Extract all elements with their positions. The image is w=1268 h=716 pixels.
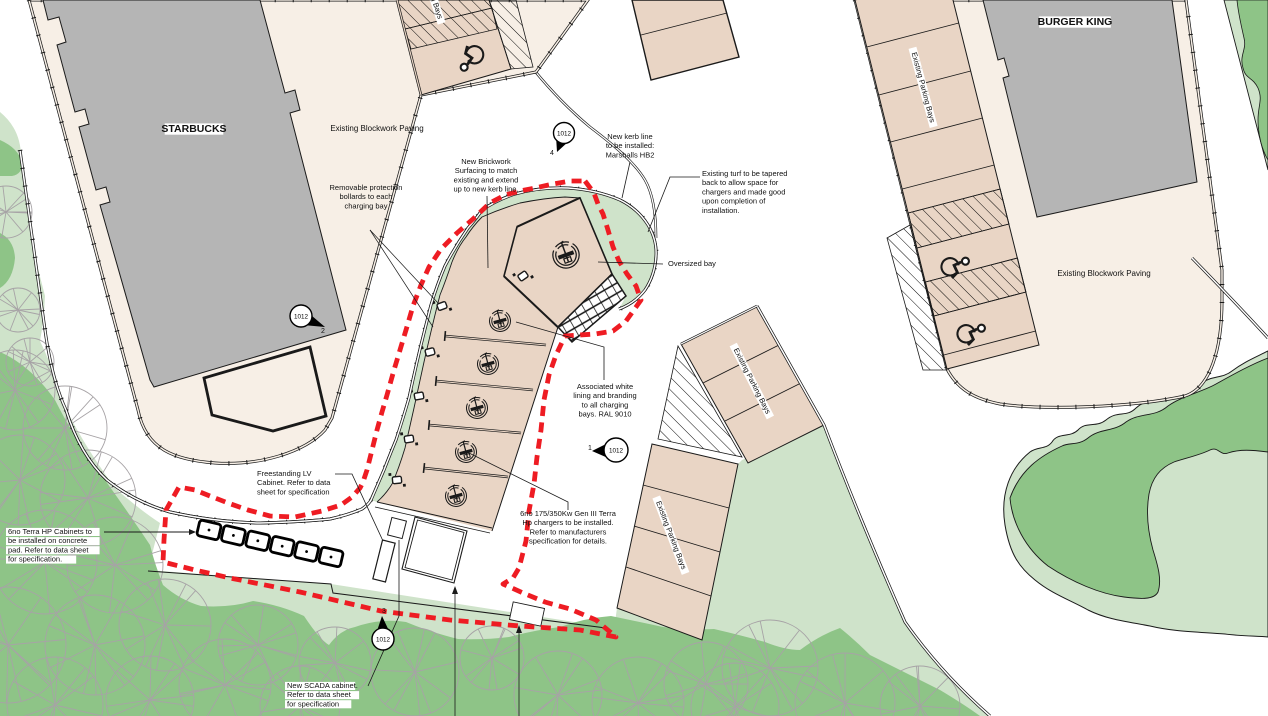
svg-text:sheet for specification: sheet for specification (257, 487, 330, 496)
svg-text:Surfacing to match: Surfacing to match (455, 166, 518, 175)
svg-text:Freestanding LV: Freestanding LV (257, 469, 311, 478)
svg-text:6no 175/350Kw Gen III Terra: 6no 175/350Kw Gen III Terra (520, 509, 617, 518)
svg-text:to all charging: to all charging (582, 400, 629, 409)
svg-text:to be installed:: to be installed: (606, 141, 654, 150)
svg-text:4: 4 (550, 150, 554, 157)
svg-text:1012: 1012 (294, 313, 309, 320)
svg-text:Associated white: Associated white (577, 382, 633, 391)
svg-text:specification for details.: specification for details. (529, 537, 607, 546)
svg-text:installation.: installation. (702, 206, 740, 215)
svg-text:upon completion of: upon completion of (702, 197, 766, 206)
svg-text:Refer to data sheet: Refer to data sheet (287, 690, 352, 699)
svg-text:charging bay: charging bay (345, 201, 388, 210)
svg-text:bollards to each: bollards to each (340, 192, 393, 201)
svg-text:Refer to manufacturers: Refer to manufacturers (530, 527, 607, 536)
svg-text:1012: 1012 (557, 130, 572, 137)
svg-text:New SCADA cabinet.: New SCADA cabinet. (287, 681, 358, 690)
svg-text:Marshalls HB2: Marshalls HB2 (606, 150, 655, 159)
svg-text:6no Terra HP Cabinets to: 6no Terra HP Cabinets to (8, 527, 92, 536)
svg-text:1: 1 (588, 445, 592, 452)
svg-text:Removable protection: Removable protection (330, 183, 403, 192)
svg-text:Existing turf to be tapered: Existing turf to be tapered (702, 169, 787, 178)
svg-text:Hp chargers to be installed.: Hp chargers to be installed. (522, 518, 613, 527)
svg-text:Existing Blockwork Paving: Existing Blockwork Paving (1057, 269, 1150, 278)
svg-text:2: 2 (321, 328, 325, 335)
svg-text:Existing Blockwork Paving: Existing Blockwork Paving (330, 124, 423, 133)
svg-text:for specification.: for specification. (8, 555, 62, 564)
svg-text:bays. RAL 9010: bays. RAL 9010 (578, 410, 631, 419)
svg-text:1012: 1012 (376, 636, 391, 643)
svg-text:back to allow space for: back to allow space for (702, 178, 779, 187)
svg-text:Oversized bay: Oversized bay (668, 259, 716, 268)
svg-text:New Brickwork: New Brickwork (461, 157, 511, 166)
svg-text:up to new kerb line.: up to new kerb line. (453, 185, 518, 194)
svg-text:BURGER KING: BURGER KING (1038, 16, 1113, 28)
svg-text:be installed on concrete: be installed on concrete (8, 536, 87, 545)
svg-text:lining and branding: lining and branding (573, 391, 636, 400)
svg-text:STARBUCKS: STARBUCKS (161, 123, 226, 135)
svg-text:existing and extend: existing and extend (454, 175, 519, 184)
svg-text:chargers and made good: chargers and made good (702, 187, 785, 196)
svg-text:for specification: for specification (287, 699, 339, 708)
svg-text:1012: 1012 (609, 447, 624, 454)
svg-text:pad. Refer to data sheet: pad. Refer to data sheet (8, 545, 89, 554)
svg-text:3: 3 (382, 608, 386, 615)
svg-text:Cabinet. Refer to data: Cabinet. Refer to data (257, 478, 331, 487)
svg-text:New kerb line: New kerb line (607, 132, 652, 141)
